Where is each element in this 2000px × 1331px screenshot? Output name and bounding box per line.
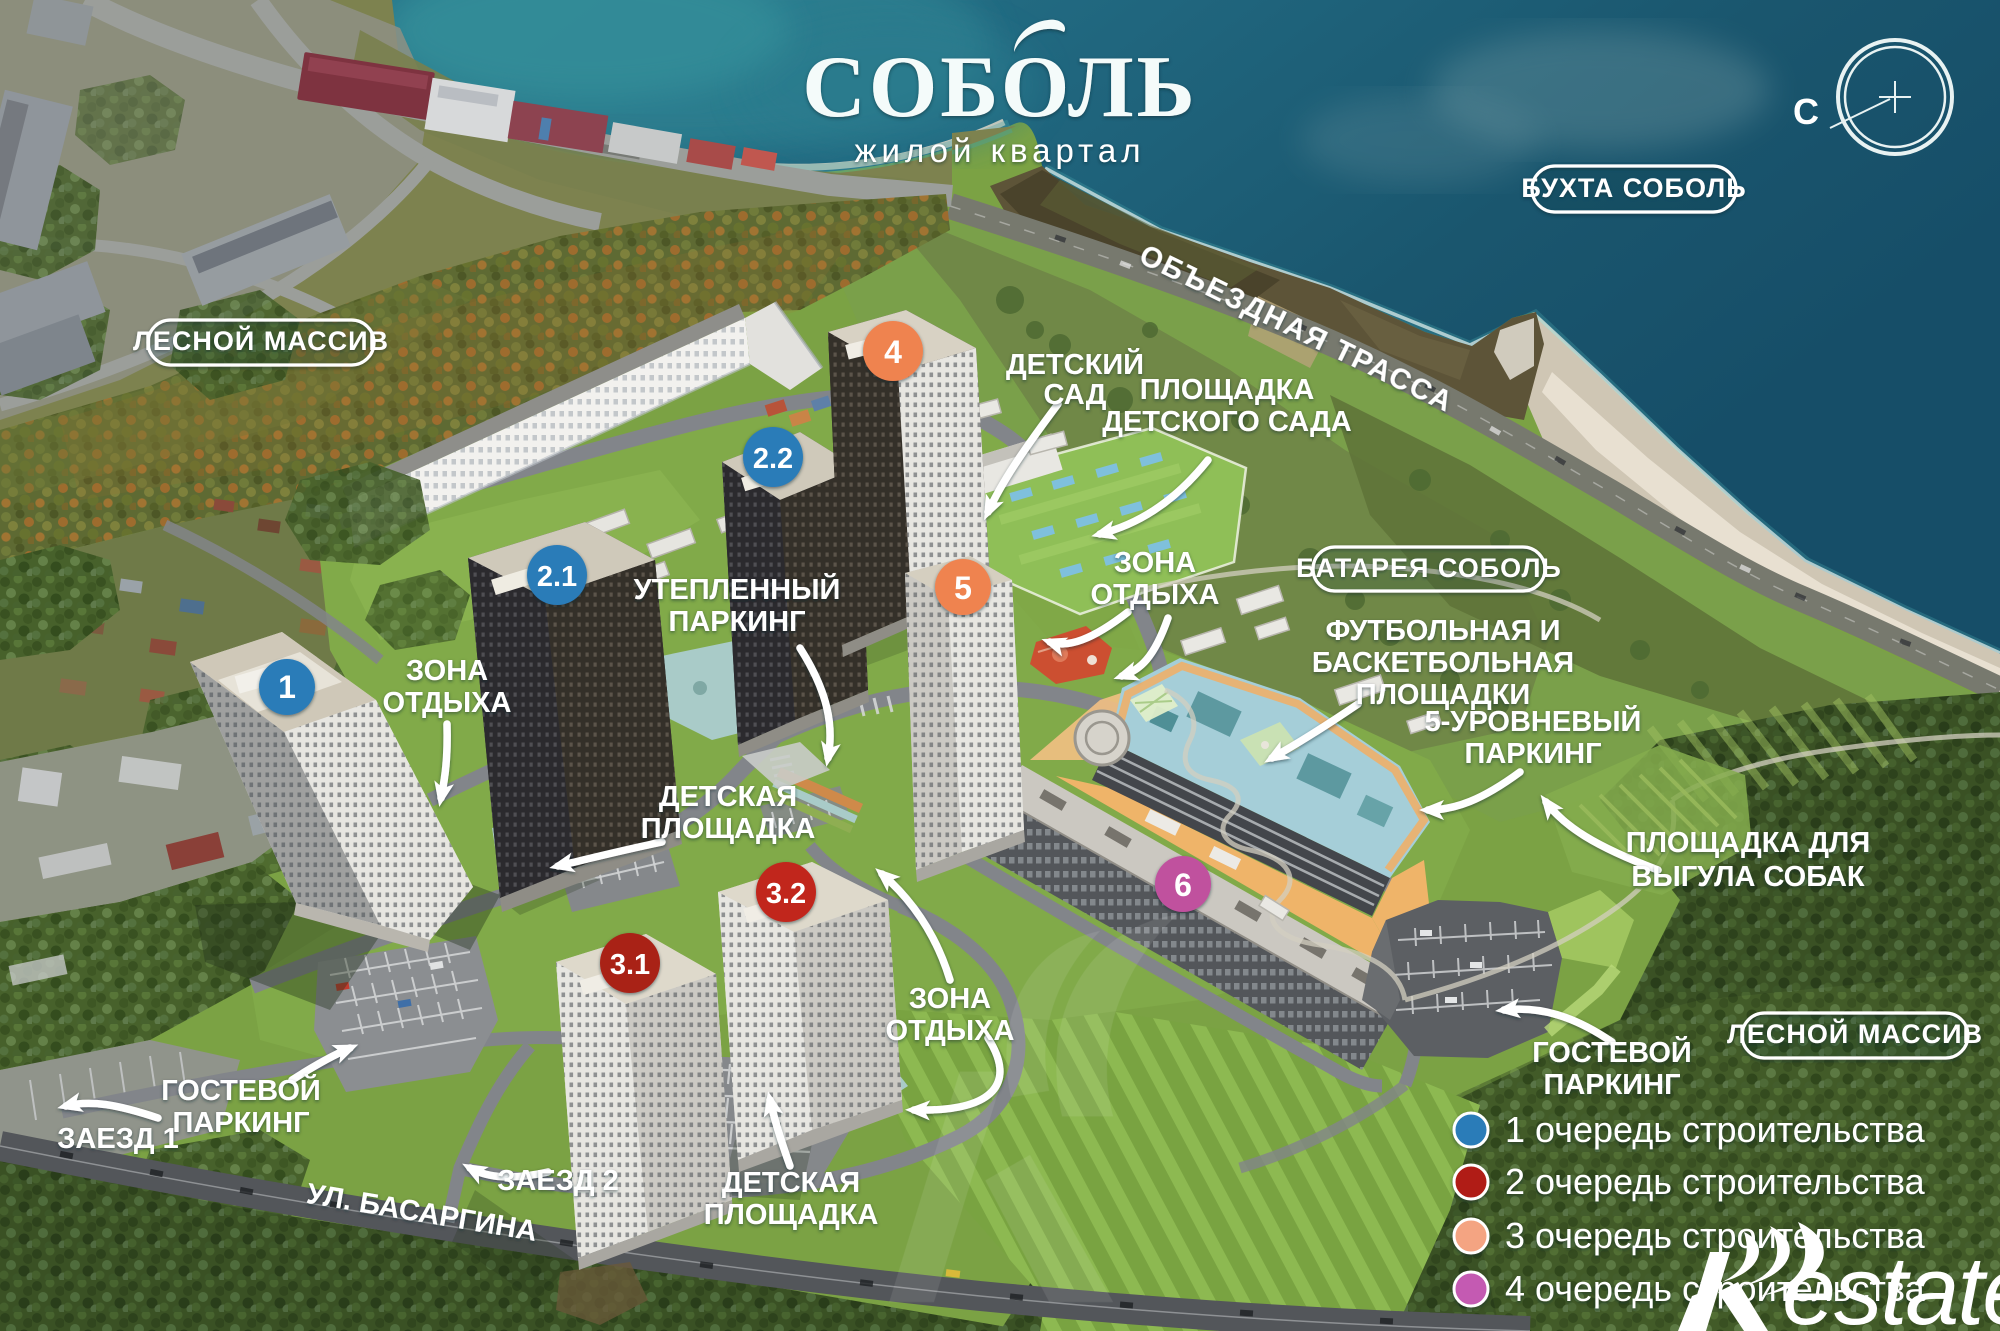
svg-text:ГОСТЕВОЙ: ГОСТЕВОЙ bbox=[1532, 1035, 1692, 1069]
svg-text:ПЛОЩАДКА: ПЛОЩАДКА bbox=[641, 813, 816, 845]
svg-text:ЗАЕЗД 1: ЗАЕЗД 1 bbox=[57, 1123, 178, 1155]
svg-text:3.1: 3.1 bbox=[610, 949, 650, 981]
svg-text:5-УРОВНЕВЫЙ: 5-УРОВНЕВЫЙ bbox=[1425, 704, 1642, 738]
svg-text:ГОСТЕВОЙ: ГОСТЕВОЙ bbox=[161, 1073, 321, 1107]
svg-text:ДЕТСКАЯ: ДЕТСКАЯ bbox=[722, 1167, 860, 1199]
svg-text:СОБОЛЬ: СОБОЛЬ bbox=[802, 39, 1197, 136]
svg-text:БАТАРЕЯ СОБОЛЬ: БАТАРЕЯ СОБОЛЬ bbox=[1296, 553, 1562, 583]
svg-text:ПАРКИНГ: ПАРКИНГ bbox=[668, 606, 805, 638]
svg-text:жилой квартал: жилой квартал bbox=[854, 132, 1145, 169]
svg-text:ПАРКИНГ: ПАРКИНГ bbox=[1543, 1069, 1680, 1101]
svg-text:ОТДЫХА: ОТДЫХА bbox=[383, 687, 512, 719]
svg-text:ПАРКИНГ: ПАРКИНГ bbox=[1464, 738, 1601, 770]
svg-text:ПЛОЩАДКА: ПЛОЩАДКА bbox=[1140, 374, 1315, 406]
svg-text:ОТДЫХА: ОТДЫХА bbox=[886, 1015, 1015, 1047]
svg-text:ВЫГУЛА СОБАК: ВЫГУЛА СОБАК bbox=[1631, 861, 1865, 893]
svg-text:САД: САД bbox=[1044, 379, 1107, 411]
svg-text:1 очередь строительства: 1 очередь строительства bbox=[1505, 1109, 1926, 1150]
svg-text:ОТДЫХА: ОТДЫХА bbox=[1091, 579, 1220, 611]
svg-text:estate: estate bbox=[1782, 1236, 2000, 1331]
svg-text:БАСКЕТБОЛЬНАЯ: БАСКЕТБОЛЬНАЯ bbox=[1312, 647, 1574, 679]
svg-text:ЗОНА: ЗОНА bbox=[1114, 547, 1196, 579]
svg-text:5: 5 bbox=[954, 570, 972, 606]
svg-text:ПЛОЩАДКА ДЛЯ: ПЛОЩАДКА ДЛЯ bbox=[1626, 827, 1871, 859]
svg-text:2.1: 2.1 bbox=[537, 561, 577, 593]
svg-text:БУХТА СОБОЛЬ: БУХТА СОБОЛЬ bbox=[1521, 173, 1746, 203]
svg-text:С: С bbox=[1793, 91, 1819, 132]
svg-text:ЛЕСНОЙ МАССИВ: ЛЕСНОЙ МАССИВ bbox=[1727, 1018, 1983, 1049]
svg-text:ЗАЕЗД 2: ЗАЕЗД 2 bbox=[497, 1165, 618, 1197]
svg-text:ЗОНА: ЗОНА bbox=[909, 983, 991, 1015]
svg-text:ДЕТСКОГО САДА: ДЕТСКОГО САДА bbox=[1102, 406, 1351, 438]
svg-text:ФУТБОЛЬНАЯ И: ФУТБОЛЬНАЯ И bbox=[1326, 615, 1561, 647]
svg-text:ПЛОЩАДКА: ПЛОЩАДКА bbox=[704, 1199, 879, 1231]
svg-text:2 очередь строительства: 2 очередь строительства bbox=[1505, 1161, 1926, 1202]
svg-text:3.2: 3.2 bbox=[766, 878, 806, 910]
svg-text:ДЕТСКАЯ: ДЕТСКАЯ bbox=[659, 781, 797, 813]
svg-text:ЛЕСНОЙ МАССИВ: ЛЕСНОЙ МАССИВ bbox=[133, 325, 389, 356]
svg-text:6: 6 bbox=[1174, 867, 1192, 903]
svg-text:1: 1 bbox=[278, 669, 296, 705]
svg-text:ДЕТСКИЙ: ДЕТСКИЙ bbox=[1006, 347, 1144, 381]
svg-text:4: 4 bbox=[884, 334, 902, 370]
svg-text:ПАРКИНГ: ПАРКИНГ bbox=[172, 1107, 309, 1139]
svg-text:ЗОНА: ЗОНА bbox=[406, 655, 488, 687]
svg-text:УТЕПЛЕННЫЙ: УТЕПЛЕННЫЙ bbox=[634, 572, 841, 606]
svg-text:2.2: 2.2 bbox=[753, 443, 793, 475]
